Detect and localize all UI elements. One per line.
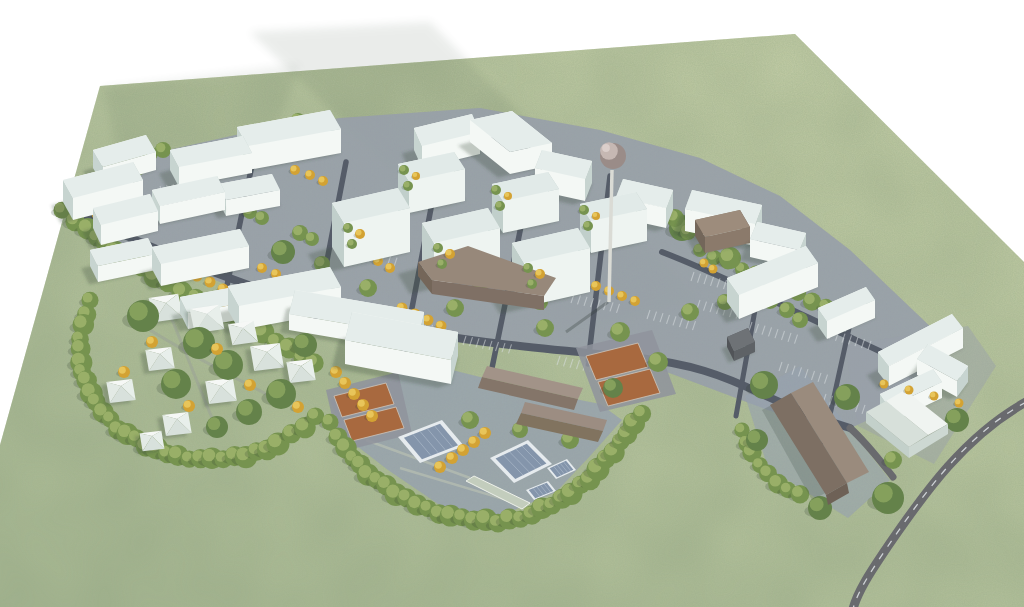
masterplan-aerial-render: [0, 0, 1024, 607]
house: [200, 378, 237, 407]
site-plan-canvas: [0, 0, 1024, 607]
house: [223, 321, 258, 349]
house: [245, 343, 284, 374]
scene-root: [0, 22, 1024, 607]
